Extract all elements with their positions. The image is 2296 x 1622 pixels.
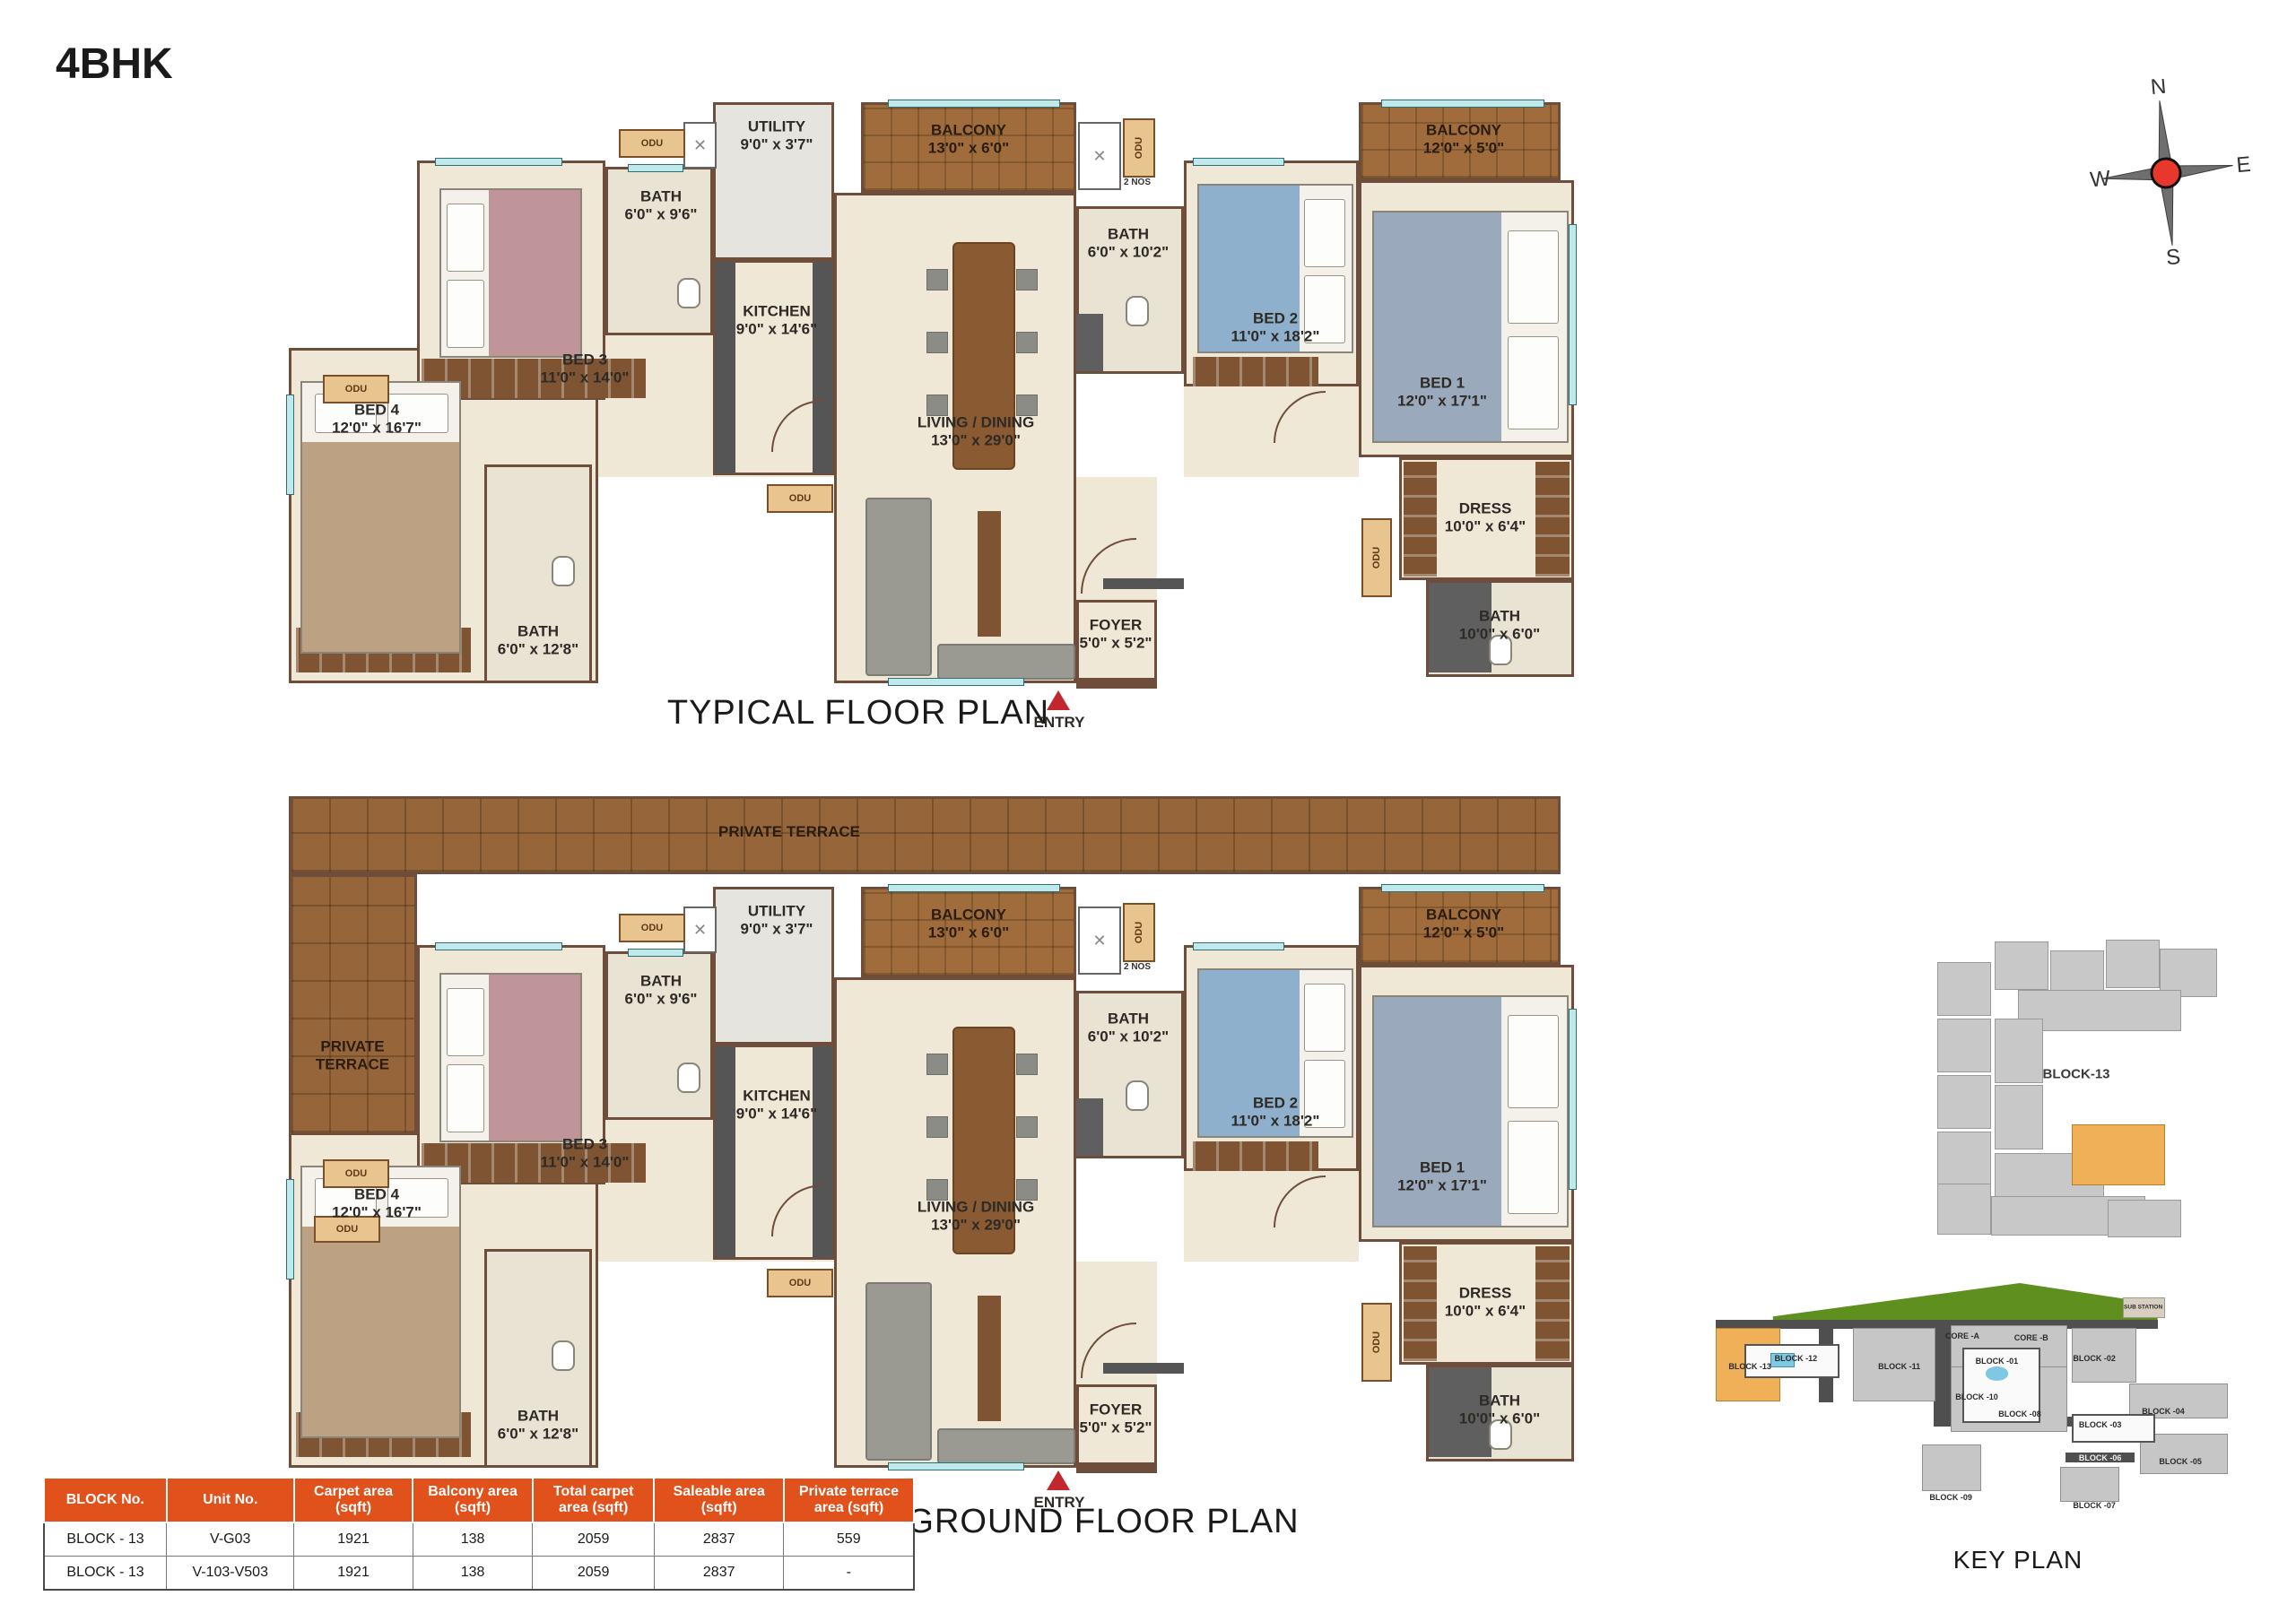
table-header-6: Private terrace area (sqft) [784, 1478, 914, 1522]
odu-label: ODU [345, 1168, 367, 1179]
bed-pillow [447, 988, 484, 1056]
room-name-living: LIVING / DINING [918, 414, 1034, 432]
odu-box: ODU [767, 1269, 833, 1297]
table-row: BLOCK - 13V-G03192113820592837559 [44, 1522, 914, 1557]
room-dims-kitchen: 9'0" x 14'6" [736, 1106, 817, 1123]
room-name-balcony13: BALCONY [928, 906, 1009, 924]
odu-box: ODU [619, 914, 685, 942]
room-name-living: LIVING / DINING [918, 1199, 1034, 1217]
room-label-bath3: BATH6'0" x 9'6" [625, 973, 698, 1010]
room-dims-bath4: 6'0" x 12'8" [498, 641, 578, 659]
toilet-fixture [677, 278, 700, 308]
room-name-dress: DRESS [1445, 1285, 1526, 1303]
dining-chair [926, 395, 948, 416]
bed-duvet [489, 975, 580, 1141]
room-dims-balcony12: 12'0" x 5'0" [1423, 140, 1504, 158]
room-dims-bath4: 6'0" x 12'8" [498, 1426, 578, 1444]
kitchen-counter [715, 262, 735, 473]
room-name-bed2: BED 2 [1231, 310, 1320, 328]
plan-passage [1184, 386, 1359, 477]
room-label-utility: UTILITY9'0" x 3'7" [741, 903, 813, 940]
odu-label: ODU [345, 384, 367, 395]
odu-count-tag: 2 NOS [1124, 962, 1151, 972]
odu-box: ODU [323, 1159, 389, 1188]
room-dims-balcony13: 13'0" x 6'0" [928, 924, 1009, 942]
dining-chair [1016, 332, 1038, 353]
bed-pillow [447, 280, 484, 348]
room-dims-balcony13: 13'0" x 6'0" [928, 140, 1009, 158]
bed-furniture [439, 188, 582, 358]
odu-box: ODU [1361, 1303, 1392, 1382]
room-name-bath4: BATH [498, 1408, 578, 1426]
room-name-kitchen: KITCHEN [736, 1088, 817, 1106]
compass-rose: N S W E [2090, 79, 2251, 267]
block-13-building [1937, 1075, 1991, 1129]
key-plan-building [1922, 1444, 1981, 1491]
odu-label: ODU [641, 923, 663, 933]
table-header-2: Carpet area (sqft) [294, 1478, 413, 1522]
key-plan-building [2060, 1467, 2119, 1502]
shaft-duct: ✕ [1078, 122, 1121, 190]
room-label-bath1: BATH10'0" x 6'0" [1459, 1392, 1540, 1429]
bed-pillow [1508, 230, 1560, 324]
key-plan-label-b03: BLOCK -03 [2079, 1420, 2122, 1429]
kitchen-counter [715, 1046, 735, 1258]
room-name-utility: UTILITY [741, 118, 813, 136]
room-name-bed1: BED 1 [1397, 1159, 1487, 1177]
typical-floor-plan: BED 412'0" x 16'7"BATH6'0" x 12'8"BED 31… [269, 90, 1614, 717]
odu-count-tag: 2 NOS [1124, 178, 1151, 187]
room-label: PRIVATE TERRACE [299, 1038, 406, 1075]
bed-pillow [1304, 199, 1345, 267]
bath-tiled-zone [1076, 314, 1103, 371]
dining-chair [926, 1054, 948, 1075]
page-title: 4BHK [56, 39, 173, 89]
dining-chair [926, 269, 948, 291]
dining-chair [926, 1179, 948, 1201]
room-dims-bed3: 11'0" x 14'0" [541, 1154, 630, 1172]
shaft-duct: ✕ [683, 906, 717, 953]
window-strip [286, 395, 294, 495]
room-dims-bath2: 6'0" x 10'2" [1088, 1028, 1169, 1046]
table-header-4: Total carpet area (sqft) [533, 1478, 655, 1522]
block-13-cluster-plan: BLOCK-13 [1937, 940, 2224, 1236]
room-dims-bath3: 6'0" x 9'6" [625, 206, 698, 224]
odu-label: ODU [641, 138, 663, 149]
table-cell: 2059 [533, 1522, 655, 1557]
dining-chair [926, 332, 948, 353]
key-plan-label-core_b: CORE -B [2014, 1333, 2048, 1342]
odu-label: ODU [1134, 137, 1144, 159]
dining-chair [926, 1116, 948, 1138]
sofa [865, 498, 932, 676]
room-label-balcony13: BALCONY13'0" x 6'0" [928, 122, 1009, 159]
room-name-bath4: BATH [498, 623, 578, 641]
odu-box: ODU [767, 484, 833, 513]
bed-pillow [1508, 336, 1560, 429]
key-plan-label-b12: BLOCK -12 [1775, 1354, 1818, 1363]
room-label-bed3: BED 311'0" x 14'0" [541, 351, 630, 388]
key-plan-label-b04: BLOCK -04 [2142, 1407, 2185, 1416]
shaft-duct: ✕ [1078, 906, 1121, 975]
room-label-living: LIVING / DINING13'0" x 29'0" [918, 414, 1034, 451]
window-strip [628, 164, 683, 172]
table-cell: BLOCK - 13 [44, 1557, 167, 1591]
room-name-bath3: BATH [625, 188, 698, 206]
bed-pillow [1508, 1015, 1560, 1108]
window-strip [1193, 942, 1284, 950]
dining-chair [1016, 1179, 1038, 1201]
block-13-building [1937, 1132, 1991, 1185]
room-dims-bath2: 6'0" x 10'2" [1088, 244, 1169, 262]
table-cell: - [784, 1557, 914, 1591]
sofa [865, 1282, 932, 1461]
room-dims-bath3: 6'0" x 9'6" [625, 991, 698, 1009]
room-dims-bath1: 10'0" x 6'0" [1459, 1410, 1540, 1428]
odu-box: ODU [1123, 118, 1155, 178]
room-label-foyer: FOYER5'0" x 5'2" [1080, 1401, 1152, 1438]
dining-chair [1016, 269, 1038, 291]
block-13-building [1937, 1184, 1991, 1235]
key-plan-sub-station-label: SUB STATION [2124, 1304, 2162, 1310]
entry-label-typical: ENTRY [1034, 714, 1085, 732]
room-name-bath2: BATH [1088, 226, 1169, 244]
toilet-fixture [552, 1340, 575, 1371]
wardrobe [1404, 462, 1437, 577]
table-cell: V-G03 [167, 1522, 294, 1557]
key-plan-label-b01: BLOCK -01 [1976, 1357, 2019, 1366]
odu-label: ODU [789, 493, 811, 504]
room-name-kitchen: KITCHEN [736, 303, 817, 321]
table-cell: 1921 [294, 1522, 413, 1557]
block-13-building [1995, 1085, 2043, 1149]
key-plan-label-b07: BLOCK -07 [2073, 1501, 2116, 1510]
room-dims-utility: 9'0" x 3'7" [741, 136, 813, 154]
table-cell: V-103-V503 [167, 1557, 294, 1591]
room-name-balcony12: BALCONY [1423, 906, 1504, 924]
room-name-bed3: BED 3 [541, 1136, 630, 1154]
key-plan-label-b02: BLOCK -02 [2073, 1354, 2116, 1363]
wardrobe [1535, 1246, 1570, 1361]
odu-label: ODU [789, 1278, 811, 1288]
room-label: PRIVATE TERRACE [718, 823, 860, 841]
window-strip [1569, 1009, 1577, 1190]
room-dims-kitchen: 9'0" x 14'6" [736, 321, 817, 339]
odu-box: ODU [1123, 903, 1155, 962]
tv-unit [978, 511, 1001, 637]
room-label-bath2: BATH6'0" x 10'2" [1088, 226, 1169, 263]
table-cell: 2837 [654, 1522, 784, 1557]
key-plan-label-b08: BLOCK -08 [1998, 1409, 2041, 1418]
block-13-building [2108, 1200, 2181, 1237]
key-plan-title: KEY PLAN [1830, 1546, 2206, 1574]
room-dims-balcony12: 12'0" x 5'0" [1423, 924, 1504, 942]
toilet-fixture [677, 1063, 700, 1093]
room-label-bed4: BED 412'0" x 16'7" [332, 402, 422, 438]
shaft-duct: ✕ [683, 122, 717, 169]
bed-duvet [489, 190, 580, 356]
odu-label: ODU [1134, 922, 1144, 943]
room-label-dress: DRESS10'0" x 6'4" [1445, 500, 1526, 537]
room-dims-bed2: 11'0" x 18'2" [1231, 328, 1320, 346]
compass-w-label: W [2090, 166, 2111, 192]
room-name-bath3: BATH [625, 973, 698, 991]
room-label-bath2: BATH6'0" x 10'2" [1088, 1010, 1169, 1047]
key-plan-label-b13: BLOCK -13 [1728, 1362, 1771, 1371]
entry-sill [1076, 678, 1157, 689]
table-header-1: Unit No. [167, 1478, 294, 1522]
room-name-bed2: BED 2 [1231, 1095, 1320, 1113]
room-label-bath1: BATH10'0" x 6'0" [1459, 608, 1540, 645]
window-strip [435, 942, 562, 950]
room-label-kitchen: KITCHEN9'0" x 14'6" [736, 303, 817, 340]
compass-center [2151, 158, 2182, 189]
block-13-building [2106, 940, 2160, 988]
room-name-dress: DRESS [1445, 500, 1526, 518]
room-dims-bed2: 11'0" x 18'2" [1231, 1113, 1320, 1131]
key-plan-label-b09: BLOCK -09 [1929, 1493, 1972, 1502]
room-name-bath2: BATH [1088, 1010, 1169, 1028]
entry-triangle-typical [1047, 690, 1070, 710]
room-dims-dress: 10'0" x 6'4" [1445, 1303, 1526, 1321]
room-name-balcony13: BALCONY [928, 122, 1009, 140]
room-label-balcony13: BALCONY13'0" x 6'0" [928, 906, 1009, 943]
room-dims-dress: 10'0" x 6'4" [1445, 518, 1526, 536]
compass-s-label: S [2165, 245, 2181, 267]
odu-label: ODU [1371, 547, 1382, 568]
table-cell: 559 [784, 1522, 914, 1557]
key-plan-label-b11: BLOCK -11 [1878, 1362, 1920, 1371]
room-name-bed4: BED 4 [332, 402, 422, 420]
room-dims-bed4: 12'0" x 16'7" [332, 420, 422, 438]
wardrobe [1193, 357, 1318, 386]
dining-chair [1016, 1116, 1038, 1138]
table-header-5: Saleable area (sqft) [654, 1478, 784, 1522]
room-name-bath1: BATH [1459, 1392, 1540, 1410]
table-cell: 138 [413, 1522, 533, 1557]
wardrobe [1193, 1141, 1318, 1171]
bed-pillow [1508, 1121, 1560, 1214]
toilet-fixture [1126, 296, 1149, 326]
room-name-bed4: BED 4 [332, 1186, 422, 1204]
window-strip [888, 678, 1024, 686]
block-13-building [1937, 962, 1991, 1016]
entry-sill [1076, 1462, 1157, 1473]
bed-pillow [447, 1064, 484, 1132]
key-plan-road [1934, 1328, 1951, 1417]
sofa [937, 1428, 1075, 1464]
key-plan-label-b06: BLOCK -06 [2079, 1453, 2122, 1462]
room-label-bed2: BED 211'0" x 18'2" [1231, 1095, 1320, 1132]
room-label-foyer: FOYER5'0" x 5'2" [1080, 617, 1152, 654]
bath-tiled-zone [1076, 1098, 1103, 1156]
room-name-utility: UTILITY [741, 903, 813, 921]
window-strip [1569, 224, 1577, 405]
tv-unit [978, 1296, 1001, 1421]
table-cell: 2837 [654, 1557, 784, 1591]
room-dims-living: 13'0" x 29'0" [918, 1217, 1034, 1235]
room-dims-bed1: 12'0" x 17'1" [1397, 1177, 1487, 1195]
room-label-living: LIVING / DINING13'0" x 29'0" [918, 1199, 1034, 1236]
wardrobe [1535, 462, 1570, 577]
wardrobe [1404, 1246, 1437, 1361]
room-name-foyer: FOYER [1080, 617, 1152, 635]
table-header-3: Balcony area (sqft) [413, 1478, 533, 1522]
table-cell: 138 [413, 1557, 533, 1591]
key-plan: SUB STATIONBLOCK -13BLOCK -12BLOCK -11CO… [1704, 1278, 2278, 1556]
table-row: BLOCK - 13V-103-V503192113820592837- [44, 1557, 914, 1591]
room-label-balcony12: BALCONY12'0" x 5'0" [1423, 906, 1504, 943]
plan-passage [1184, 1171, 1359, 1262]
bed-pillow [447, 204, 484, 272]
area-table: BLOCK No.Unit No.Carpet area (sqft)Balco… [43, 1477, 915, 1591]
bed-duvet [302, 1227, 459, 1436]
window-strip [628, 949, 683, 957]
room-label-bed4: BED 412'0" x 16'7" [332, 1186, 422, 1223]
odu-label: ODU [1371, 1331, 1382, 1353]
entry-triangle-ground [1047, 1470, 1070, 1490]
room-label-bath4: BATH6'0" x 12'8" [498, 1408, 578, 1444]
block-13-building [1995, 941, 2048, 990]
odu-box: ODU [1361, 518, 1392, 597]
room-dims-living: 13'0" x 29'0" [918, 432, 1034, 450]
bed-duvet [302, 442, 459, 652]
window-strip [888, 100, 1060, 108]
key-plan-fountain [1986, 1366, 2009, 1381]
room-name-bed1: BED 1 [1397, 375, 1487, 393]
floorplan-page: 4BHK BED 412'0" x 16'7"BATH6'0" x 12'8"B… [0, 0, 2296, 1622]
entry-label-ground: ENTRY [1034, 1494, 1085, 1512]
dining-chair [1016, 1054, 1038, 1075]
odu-box: ODU [619, 129, 685, 158]
table-header-0: BLOCK No. [44, 1478, 167, 1522]
room-label-bath3: BATH6'0" x 9'6" [625, 188, 698, 225]
private-terrace-top [289, 796, 1561, 874]
room-name-bath1: BATH [1459, 608, 1540, 626]
bed-pillow [1304, 984, 1345, 1052]
room-dims-foyer: 5'0" x 5'2" [1080, 1419, 1152, 1437]
room-name-foyer: FOYER [1080, 1401, 1152, 1419]
window-strip [888, 884, 1060, 892]
odu-box: ODU [323, 375, 389, 403]
block-13-building [1937, 1019, 1991, 1072]
block-13-cluster-label: BLOCK-13 [2042, 1067, 2109, 1082]
room-dims-bed3: 11'0" x 14'0" [541, 369, 630, 387]
window-strip [435, 158, 562, 166]
room-dims-utility: 9'0" x 3'7" [741, 921, 813, 939]
room-label-balcony12: BALCONY12'0" x 5'0" [1423, 122, 1504, 159]
room-label-bed3: BED 311'0" x 14'0" [541, 1136, 630, 1173]
toilet-fixture [1126, 1080, 1149, 1111]
ground-floor-plan: PRIVATE TERRACEPRIVATE TERRACEODUBED 412… [269, 796, 1614, 1505]
room-dims-bath1: 10'0" x 6'0" [1459, 626, 1540, 644]
ground-plan-title: GROUND FLOOR PLAN [834, 1503, 1372, 1541]
key-plan-label-b05: BLOCK -05 [2159, 1457, 2202, 1466]
sofa [937, 644, 1075, 680]
key-plan-label-b10: BLOCK -10 [1955, 1392, 1998, 1401]
room-label-dress: DRESS10'0" x 6'4" [1445, 1285, 1526, 1322]
table-cell: BLOCK - 13 [44, 1522, 167, 1557]
window-strip [1381, 884, 1544, 892]
room-dims-bed1: 12'0" x 17'1" [1397, 393, 1487, 411]
room-label-bed2: BED 211'0" x 18'2" [1231, 310, 1320, 347]
compass-n-label: N [2150, 79, 2168, 100]
table-cell: 1921 [294, 1557, 413, 1591]
room-label-bed1: BED 112'0" x 17'1" [1397, 1159, 1487, 1196]
block-13-building [1995, 1019, 2043, 1083]
toilet-fixture [552, 556, 575, 586]
room-label-bath4: BATH6'0" x 12'8" [498, 623, 578, 660]
dining-chair [1016, 395, 1038, 416]
room-name-bed3: BED 3 [541, 351, 630, 369]
room-label-utility: UTILITY9'0" x 3'7" [741, 118, 813, 155]
room-dims-bed4: 12'0" x 16'7" [332, 1204, 422, 1222]
key-plan-label-core_a: CORE -A [1945, 1331, 1979, 1340]
block-13-highlighted-unit [2072, 1124, 2165, 1185]
room-name-balcony12: BALCONY [1423, 122, 1504, 140]
table-cell: 2059 [533, 1557, 655, 1591]
compass-e-label: E [2235, 152, 2251, 178]
window-strip [888, 1462, 1024, 1470]
room-label-kitchen: KITCHEN9'0" x 14'6" [736, 1088, 817, 1124]
bed-furniture [439, 973, 582, 1142]
window-strip [1193, 158, 1284, 166]
window-strip [1381, 100, 1544, 108]
room-dims-foyer: 5'0" x 5'2" [1080, 635, 1152, 653]
room-label-bed1: BED 112'0" x 17'1" [1397, 375, 1487, 412]
window-strip [286, 1179, 294, 1279]
